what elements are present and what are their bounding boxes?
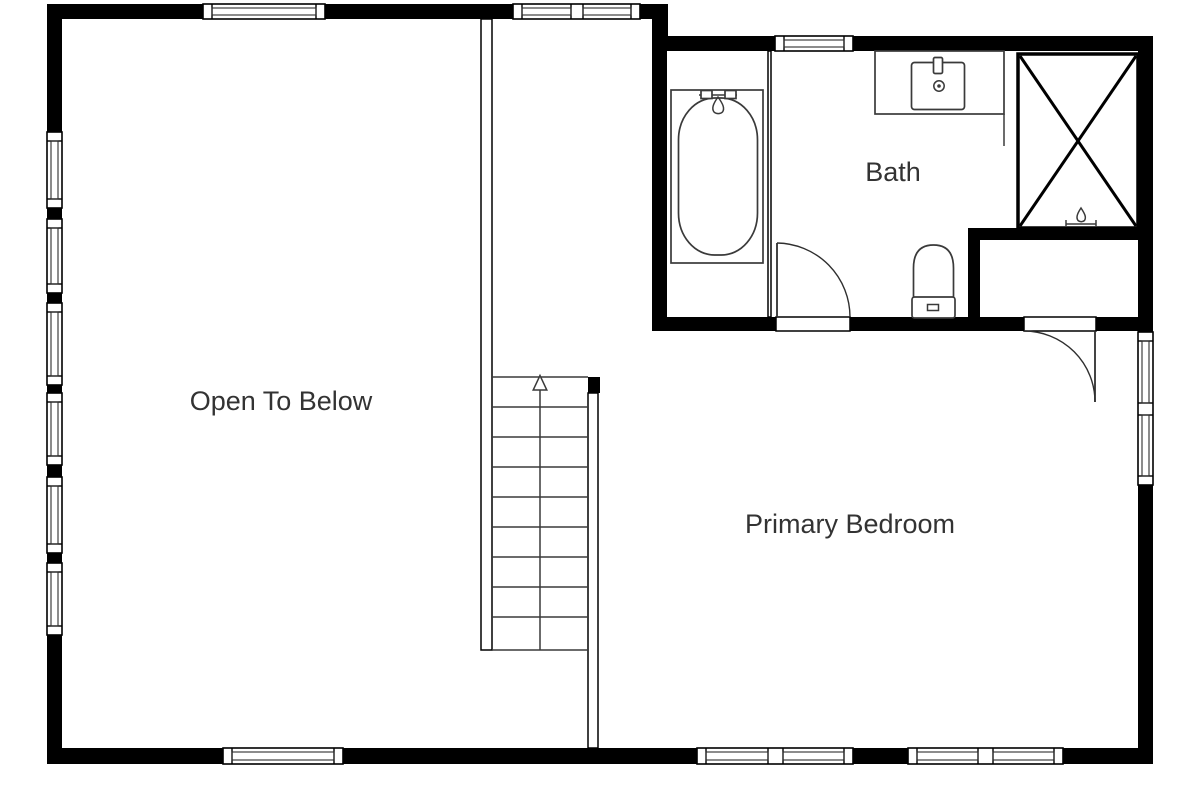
window-right [1138, 332, 1153, 485]
sink-faucet [934, 58, 943, 74]
window-left-6 [47, 563, 62, 635]
floor-plan-page: Open To Below Bath Primary Bedroom [0, 0, 1200, 800]
stairwell-left-wall [481, 19, 492, 650]
window-left-3 [47, 303, 62, 385]
wall-bath-left [652, 51, 667, 331]
window-top-1 [203, 4, 325, 19]
wall-bath-bottom-right [850, 317, 968, 331]
wall-bath-top [652, 36, 1153, 51]
window-top-2 [513, 4, 640, 19]
bath-door [776, 243, 850, 331]
window-bottom-3 [908, 748, 1063, 764]
wall-closet-bottom-right [1096, 317, 1138, 331]
toilet-icon [912, 245, 955, 318]
wall-under-shower [968, 228, 1153, 240]
window-bottom-1 [223, 748, 343, 764]
room-labels: Open To Below Bath Primary Bedroom [190, 157, 955, 539]
window-left-2 [47, 219, 62, 293]
label-open-to-below: Open To Below [190, 386, 373, 416]
wall-closet-left [968, 228, 980, 331]
closet-door [1024, 317, 1096, 402]
vanity-sink-icon [875, 51, 1004, 146]
tub-alcove-wall [768, 51, 771, 317]
window-bottom-2 [697, 748, 853, 764]
wall-stair-stub [588, 377, 600, 393]
window-left-5 [47, 477, 62, 553]
window-left-4 [47, 393, 62, 465]
stairwell-right-wall [588, 393, 598, 748]
bathtub-icon [671, 90, 763, 263]
label-primary-bedroom: Primary Bedroom [745, 509, 955, 539]
staircase [492, 376, 588, 651]
label-bath: Bath [865, 157, 921, 187]
floor-plan-drawing: Open To Below Bath Primary Bedroom [0, 0, 1200, 800]
window-left-1 [47, 132, 62, 208]
wall-bath-bottom-left [652, 317, 776, 331]
toilet-tank [912, 297, 955, 318]
toilet-bowl [914, 245, 954, 298]
window-bath-top [775, 36, 853, 51]
shower-icon [1018, 54, 1138, 228]
wall-closet-bottom-left [968, 317, 1024, 331]
